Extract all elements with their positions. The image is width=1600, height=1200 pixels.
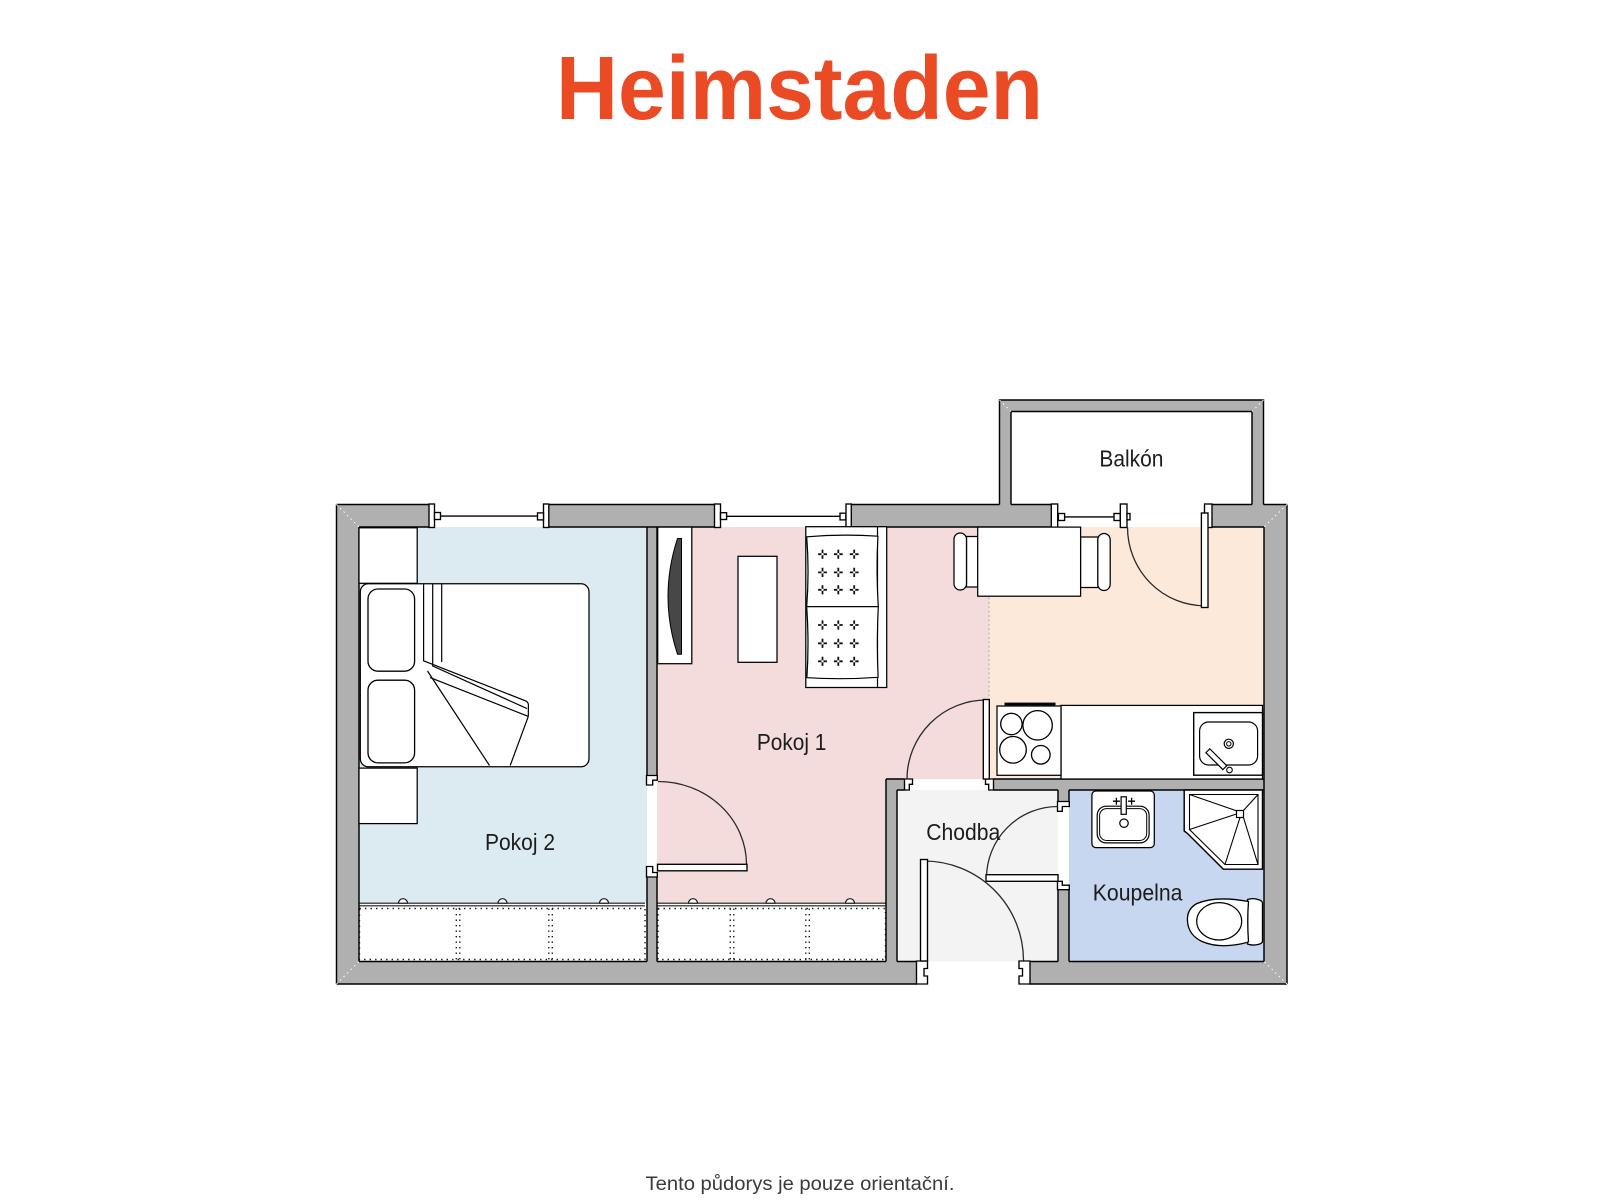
svg-text:Pokoj 2: Pokoj 2 bbox=[485, 829, 555, 855]
svg-text:Heimstaden: Heimstaden bbox=[556, 39, 1043, 139]
svg-text:Chodba: Chodba bbox=[926, 819, 1001, 845]
svg-text:Tento půdorys je pouze orienta: Tento půdorys je pouze orientační. bbox=[646, 1174, 955, 1195]
svg-text:Koupelna: Koupelna bbox=[1093, 879, 1184, 905]
svg-text:Pokoj 1: Pokoj 1 bbox=[757, 729, 827, 755]
svg-text:Balkón: Balkón bbox=[1099, 445, 1163, 471]
